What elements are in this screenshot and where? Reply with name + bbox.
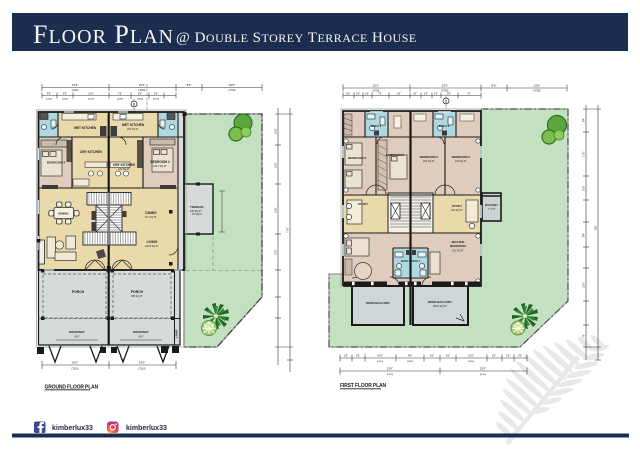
svg-text:7'6": 7'6" (378, 93, 382, 96)
svg-text:11'6": 11'6" (88, 92, 94, 96)
svg-text:10'6": 10'6" (377, 354, 383, 358)
svg-text:105 SQ.FT.: 105 SQ.FT. (127, 128, 139, 131)
svg-text:8'4": 8'4" (582, 233, 586, 237)
svg-text:[4730]: [4730] (229, 89, 236, 92)
svg-text:24'0": 24'0" (72, 361, 79, 365)
svg-text:BEDROOM 4: BEDROOM 4 (150, 160, 170, 164)
svg-text:24'0": 24'0" (139, 361, 146, 365)
svg-text:TERRACE: TERRACE (190, 205, 204, 209)
svg-text:[7315]: [7315] (139, 368, 146, 371)
svg-text:DRY KITCHEN: DRY KITCHEN (113, 163, 135, 167)
svg-text:[2285]: [2285] (117, 99, 123, 101)
svg-text:4'6": 4'6" (63, 92, 67, 96)
svg-text:184.5 SQ.FT.: 184.5 SQ.FT. (433, 305, 447, 308)
svg-text:5'6": 5'6" (447, 93, 451, 96)
svg-text:7'6": 7'6" (467, 93, 471, 96)
svg-text:22'0": 22'0" (480, 367, 486, 371)
svg-text:BEDROOM 2: BEDROOM 2 (386, 153, 405, 157)
svg-text:[7315]: [7315] (72, 368, 79, 371)
svg-text:8'4": 8'4" (582, 118, 586, 122)
svg-text:BEDROOM 3: BEDROOM 3 (452, 155, 471, 159)
svg-text:234.5 SQ.FT.: 234.5 SQ.FT. (145, 245, 159, 248)
svg-text:2'6": 2'6" (506, 355, 510, 358)
svg-text:3 SQ.M: 3 SQ.M (488, 209, 496, 211)
svg-text:[1400]: [1400] (46, 99, 52, 101)
svg-text:[4730]: [4730] (534, 90, 541, 93)
svg-text:BEDROOM 4: BEDROOM 4 (47, 161, 66, 165)
svg-text:22'0": 22'0" (387, 367, 393, 371)
svg-text:OPEN BALCONY: OPEN BALCONY (366, 301, 390, 305)
svg-text:WET KITCHEN: WET KITCHEN (74, 126, 97, 130)
svg-text:@ DOUBLE STOREY TERRACE HOUSE: @ DOUBLE STOREY TERRACE HOUSE (176, 30, 417, 46)
svg-text:2'6": 2'6" (424, 93, 428, 96)
svg-text:4'6": 4'6" (47, 92, 51, 96)
svg-text:22'0": 22'0" (442, 84, 449, 88)
svg-text:18 SQ.M: 18 SQ.M (192, 213, 201, 216)
svg-text:22'0": 22'0" (373, 84, 380, 88)
svg-text:[1680]: [1680] (137, 99, 143, 101)
svg-text:100 SQ.FT.: 100 SQ.FT. (451, 209, 463, 212)
svg-text:10'6": 10'6" (274, 128, 278, 134)
svg-text:DINING: DINING (145, 211, 157, 215)
svg-text:8'6": 8'6" (187, 83, 192, 87)
svg-text:13'6": 13'6" (72, 83, 79, 87)
svg-text:79'6": 79'6" (594, 225, 598, 231)
svg-text:11'0": 11'0" (582, 282, 586, 288)
svg-text:DINING: DINING (58, 212, 69, 216)
svg-text:2'6": 2'6" (356, 93, 360, 96)
svg-text:BEDROOM 2: BEDROOM 2 (420, 155, 439, 159)
svg-text:16'0": 16'0" (138, 336, 143, 339)
svg-text:BATH 3: BATH 3 (439, 124, 450, 128)
svg-text:12'0": 12'0" (274, 249, 278, 255)
svg-text:[4115]: [4115] (72, 89, 79, 92)
svg-text:BATH 3: BATH 3 (371, 124, 382, 128)
svg-text:[3505]: [3505] (88, 99, 94, 101)
svg-text:16'6": 16'6" (274, 207, 278, 213)
svg-text:5'6": 5'6" (446, 355, 450, 358)
svg-text:kimberlux33: kimberlux33 (52, 425, 93, 432)
svg-text:STUDY: STUDY (452, 204, 462, 208)
svg-text:OPEN BALCONY: OPEN BALCONY (428, 300, 452, 304)
svg-text:FIRST FLOOR PLAN: FIRST FLOOR PLAN (340, 383, 386, 389)
svg-text:kimberlux33: kimberlux33 (126, 425, 167, 432)
svg-text:STUDY: STUDY (358, 202, 368, 206)
svg-text:10'6": 10'6" (139, 83, 146, 87)
svg-text:2'6": 2'6" (434, 93, 438, 96)
svg-text:3'6": 3'6" (413, 93, 417, 96)
svg-text:LIVING: LIVING (147, 240, 158, 244)
svg-text:202 SQ.FT.: 202 SQ.FT. (452, 250, 464, 253)
svg-text:3'6": 3'6" (346, 93, 350, 96)
svg-text:15'6": 15'6" (534, 84, 541, 88)
svg-text:LAWN: LAWN (175, 330, 179, 338)
svg-text:7'6": 7'6" (118, 92, 122, 96)
svg-text:10'0": 10'0" (582, 185, 586, 191)
svg-text:PORCH: PORCH (72, 290, 85, 294)
svg-text:[6705]: [6705] (480, 374, 486, 376)
svg-text:BALCONY: BALCONY (485, 203, 498, 207)
svg-text:[1400]: [1400] (62, 99, 68, 101)
svg-text:BATH 2 BATH 1: BATH 2 BATH 1 (401, 259, 421, 263)
svg-text:WET KITCHEN: WET KITCHEN (122, 123, 145, 127)
svg-text:3'6": 3'6" (154, 92, 158, 96)
svg-text:5'6": 5'6" (138, 92, 142, 96)
svg-text:5'6": 5'6" (430, 355, 434, 358)
svg-text:150 SQ.FT.: 150 SQ.FT. (423, 160, 435, 163)
svg-text:16'0": 16'0" (74, 336, 79, 339)
svg-text:8'6": 8'6" (492, 84, 497, 88)
svg-text:[2895]: [2895] (407, 361, 413, 363)
svg-text:9'6": 9'6" (408, 354, 412, 358)
svg-text:2'6": 2'6" (518, 355, 522, 358)
svg-text:10'6": 10'6" (468, 354, 474, 358)
svg-text:DRY KITCHEN: DRY KITCHEN (80, 150, 102, 154)
svg-text:217 SQ.FT.: 217 SQ.FT. (145, 216, 157, 219)
svg-text:15'6": 15'6" (229, 83, 236, 87)
svg-text:[1060]: [1060] (153, 99, 159, 101)
svg-text:DRIVEWAY: DRIVEWAY (133, 330, 149, 334)
svg-text:[3200]: [3200] (468, 361, 474, 363)
svg-text:2'6": 2'6" (365, 93, 369, 96)
svg-text:BEDROOM: BEDROOM (450, 244, 466, 248)
svg-text:13'0": 13'0" (274, 162, 278, 168)
svg-text:BEDROOM 3: BEDROOM 3 (348, 156, 367, 160)
svg-text:2'6": 2'6" (356, 355, 360, 358)
svg-text:7'6": 7'6" (582, 334, 586, 338)
svg-text:5'0": 5'0" (492, 355, 496, 358)
svg-text:185 SQ.FT.: 185 SQ.FT. (131, 295, 143, 298)
svg-text:129 SQ.FT.: 129 SQ.FT. (118, 168, 130, 171)
svg-text:5'6": 5'6" (397, 93, 401, 96)
svg-text:140 SQ.FT.: 140 SQ.FT. (455, 160, 467, 163)
svg-text:2'6": 2'6" (344, 355, 348, 358)
svg-text:[6705]: [6705] (387, 374, 393, 376)
svg-text:PORCH: PORCH (131, 290, 144, 294)
svg-text:149.2 SQ.FT.: 149.2 SQ.FT. (153, 165, 167, 168)
svg-text:77'6": 77'6" (286, 227, 290, 233)
svg-text:[3200]: [3200] (377, 361, 383, 363)
svg-text:17'0": 17'0" (582, 151, 586, 157)
svg-text:DRIVEWAY: DRIVEWAY (69, 330, 85, 334)
